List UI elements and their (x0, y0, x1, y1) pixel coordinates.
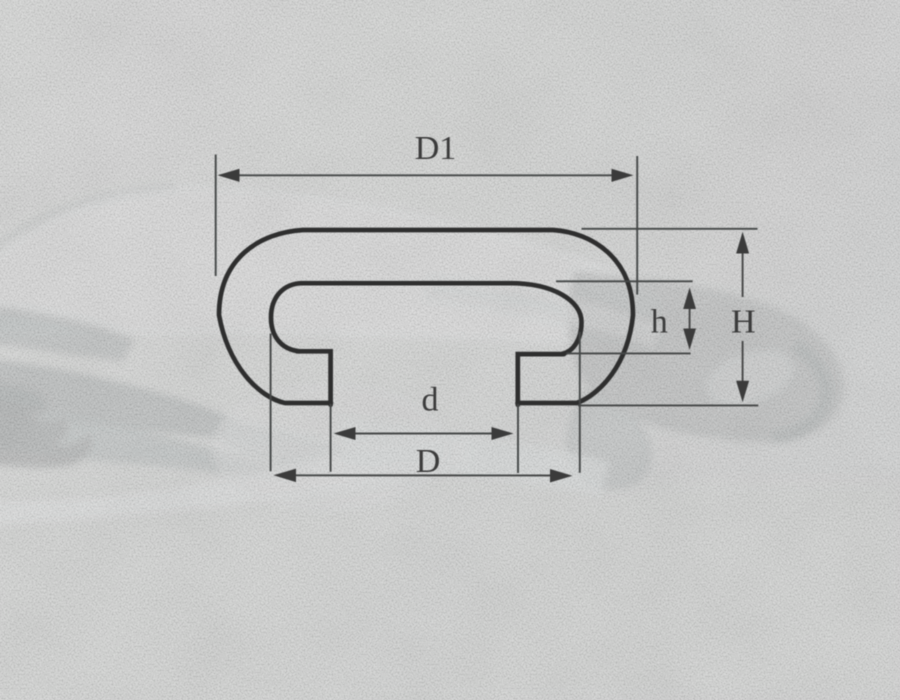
svg-text:D: D (416, 443, 441, 480)
svg-text:d: d (422, 382, 439, 419)
svg-text:H: H (731, 304, 756, 341)
svg-text:h: h (651, 304, 668, 341)
svg-text:D1: D1 (415, 130, 457, 167)
